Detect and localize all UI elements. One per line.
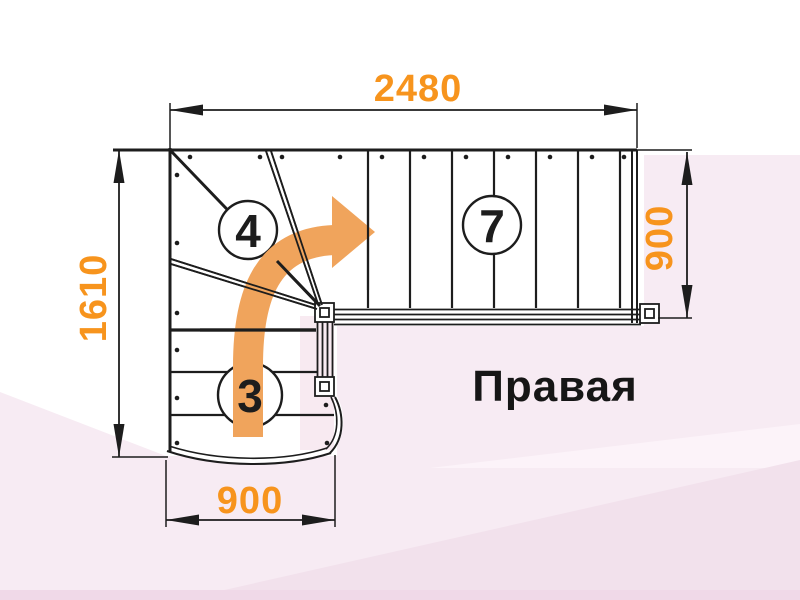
background-bottom-strip — [0, 590, 800, 600]
stair-plan-drawing: 2480 1610 900 900 4 7 3 Правая — [0, 0, 800, 600]
upper-flight-step-count: 7 — [479, 200, 505, 252]
lower-flight-step-count: 3 — [237, 370, 263, 422]
stair-plan-svg: 2480 1610 900 900 4 7 3 Правая — [0, 0, 800, 600]
dim-bottom-label: 900 — [217, 480, 283, 522]
winder-step-count: 4 — [235, 205, 261, 257]
dim-top-label: 2480 — [374, 68, 463, 110]
orientation-label: Правая — [472, 362, 638, 411]
dim-right-label: 900 — [639, 205, 681, 271]
dim-left-label: 1610 — [73, 254, 115, 343]
